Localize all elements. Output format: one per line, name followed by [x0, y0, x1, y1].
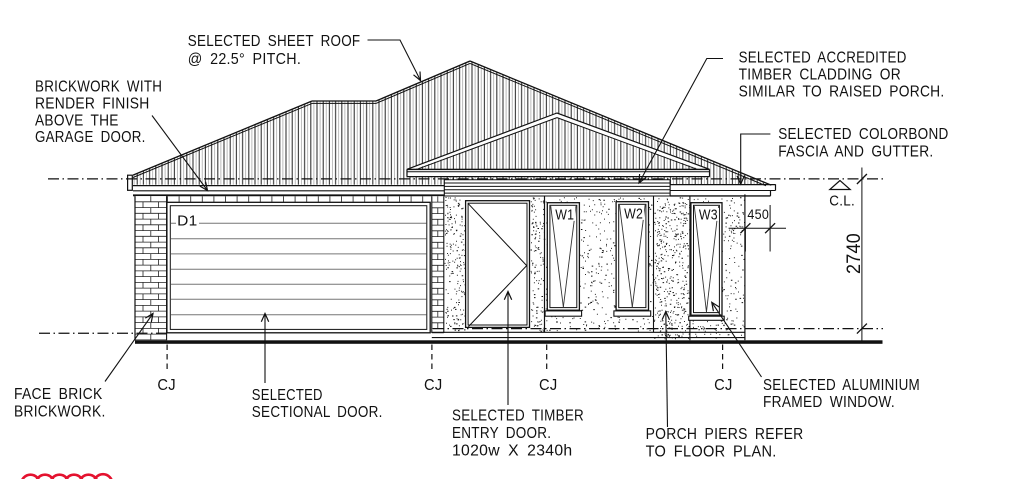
svg-text:SELECTED: SELECTED [252, 387, 323, 404]
svg-text:CJ: CJ [539, 377, 558, 394]
svg-text:SELECTED SHEET ROOF: SELECTED SHEET ROOF [188, 33, 361, 50]
svg-text:ENTRY DOOR.: ENTRY DOOR. [452, 425, 551, 442]
svg-text:TO FLOOR PLAN.: TO FLOOR PLAN. [646, 443, 777, 460]
svg-text:CJ: CJ [714, 377, 733, 394]
svg-text:D1: D1 [177, 213, 197, 230]
svg-text:2740: 2740 [844, 233, 865, 274]
svg-text:FASCIA AND GUTTER.: FASCIA AND GUTTER. [778, 143, 933, 160]
svg-text:450: 450 [747, 206, 769, 222]
svg-text:ABOVE THE: ABOVE THE [35, 113, 119, 130]
svg-text:FRAMED WINDOW.: FRAMED WINDOW. [763, 394, 895, 411]
svg-text:W3: W3 [699, 206, 718, 223]
svg-text:SELECTED COLORBOND: SELECTED COLORBOND [778, 126, 948, 143]
svg-text:GARAGE DOOR.: GARAGE DOOR. [35, 129, 146, 146]
svg-text:@ 22.5° PITCH.: @ 22.5° PITCH. [188, 51, 301, 68]
svg-text:TIMBER CLADDING OR: TIMBER CLADDING OR [739, 67, 901, 84]
svg-text:BRICKWORK.: BRICKWORK. [14, 403, 106, 420]
svg-text:CJ: CJ [157, 377, 176, 394]
svg-text:PORCH PIERS REFER: PORCH PIERS REFER [646, 426, 804, 443]
svg-text:1020w X 2340h: 1020w X 2340h [452, 442, 573, 459]
svg-text:RENDER FINISH: RENDER FINISH [35, 96, 150, 113]
svg-text:FACE BRICK: FACE BRICK [14, 386, 103, 403]
svg-text:C.L.: C.L. [829, 194, 855, 210]
svg-text:SELECTED ACCREDITED: SELECTED ACCREDITED [739, 50, 907, 67]
svg-text:SELECTED ALUMINIUM: SELECTED ALUMINIUM [763, 377, 920, 394]
svg-text:BRICKWORK WITH: BRICKWORK WITH [35, 79, 162, 96]
svg-text:W2: W2 [624, 205, 643, 222]
svg-text:SIMILAR TO RAISED PORCH.: SIMILAR TO RAISED PORCH. [739, 83, 945, 100]
svg-text:CJ: CJ [424, 377, 443, 394]
svg-text:SECTIONAL DOOR.: SECTIONAL DOOR. [252, 404, 383, 421]
svg-text:SELECTED TIMBER: SELECTED TIMBER [452, 408, 584, 425]
svg-text:W1: W1 [555, 206, 574, 223]
